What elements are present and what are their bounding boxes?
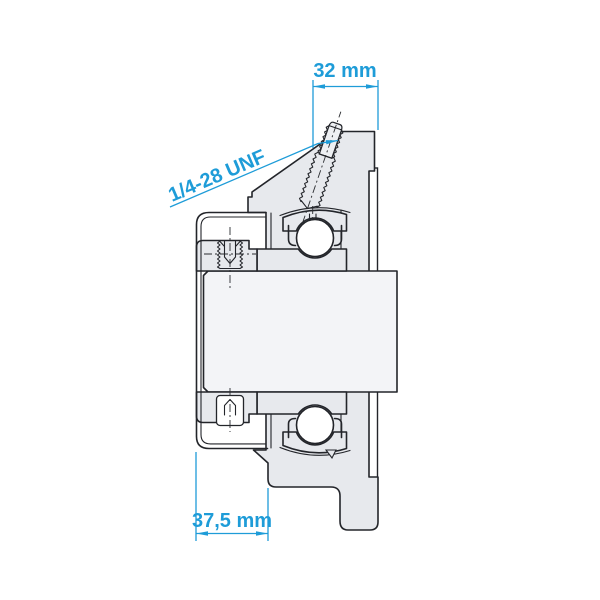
dimension-label-top: 32 mm bbox=[313, 60, 376, 82]
arrow-left-icon bbox=[313, 84, 325, 89]
inner-ring-bottom bbox=[257, 392, 347, 414]
collar-top bbox=[197, 241, 258, 272]
technical-drawing-canvas: 32 mm 37,5 mm 1/4-28 UNF bbox=[0, 0, 600, 600]
ball-top bbox=[297, 220, 334, 257]
drawing-area: 32 mm 37,5 mm 1/4-28 UNF bbox=[0, 0, 600, 600]
dimension-37-5mm: 37,5 mm bbox=[192, 452, 272, 541]
arrow-right-icon bbox=[366, 84, 378, 89]
inner-ring-top bbox=[257, 249, 347, 271]
dimension-label-bottom: 37,5 mm bbox=[192, 510, 272, 532]
shaft bbox=[204, 271, 398, 392]
ball-bottom bbox=[297, 407, 334, 444]
